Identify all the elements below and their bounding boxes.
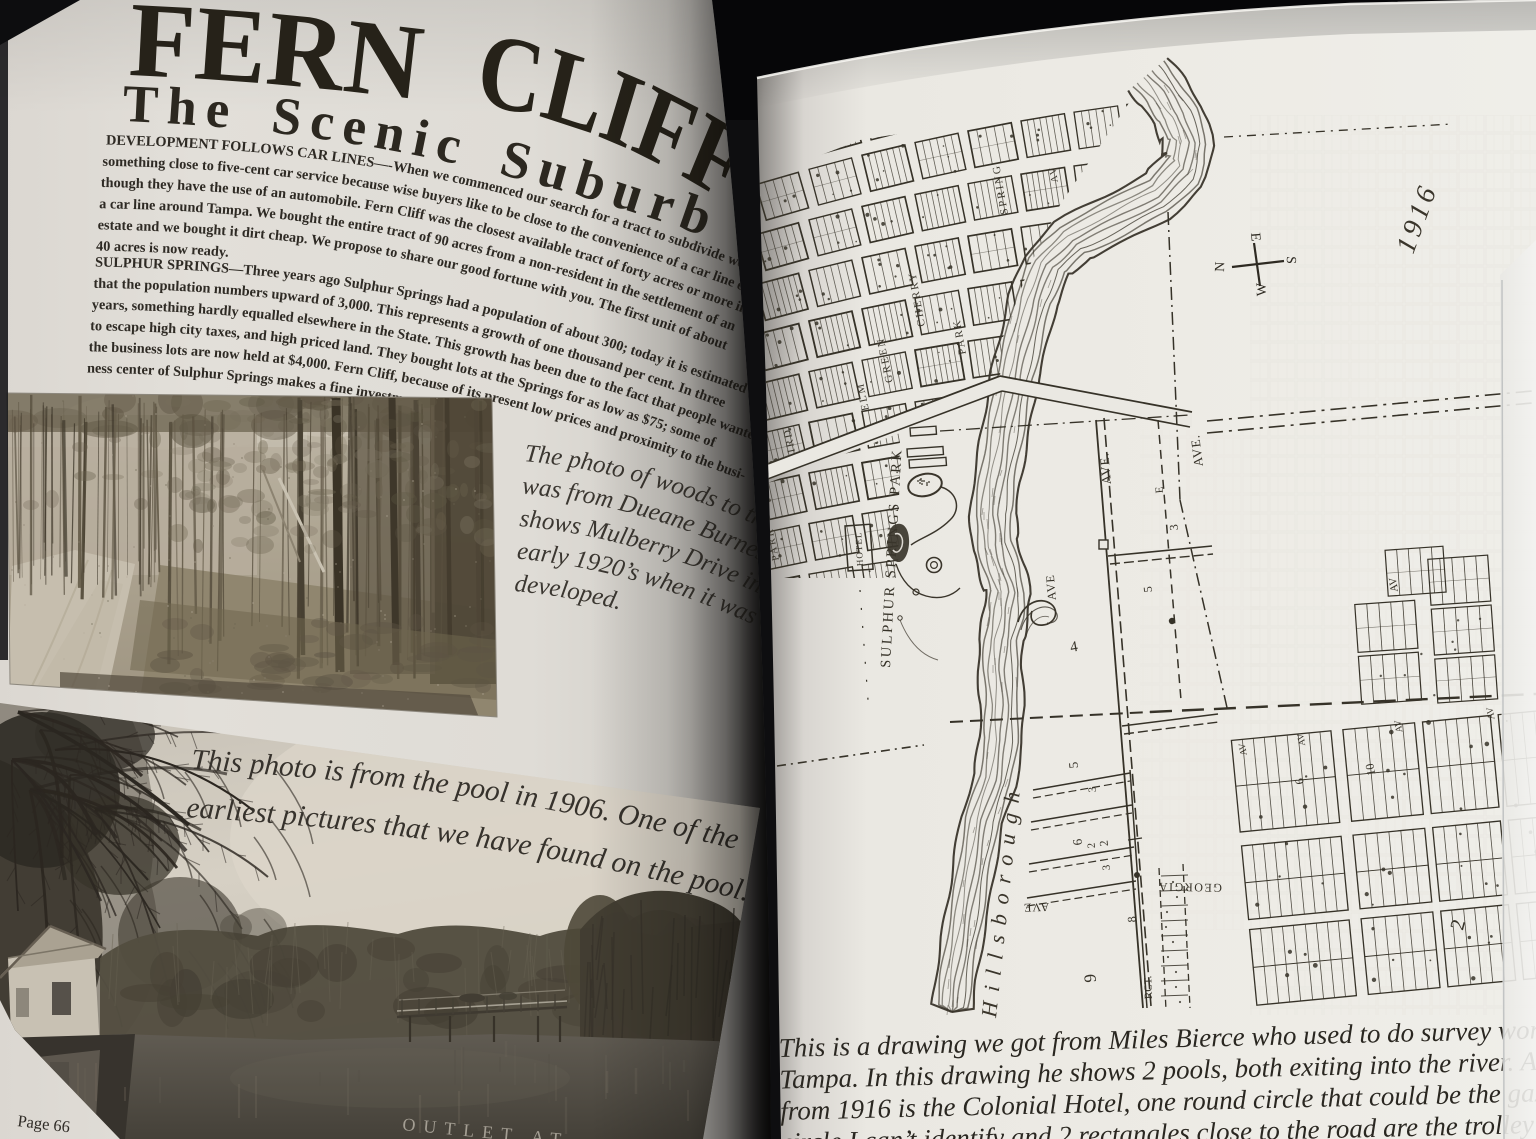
svg-text:10: 10 — [1362, 762, 1378, 776]
svg-text:W: W — [1255, 282, 1270, 297]
svg-text:8: 8 — [1125, 916, 1139, 923]
svg-text:E: E — [1153, 486, 1166, 494]
svg-text:E: E — [1247, 232, 1263, 242]
svg-text:AVE.: AVE. — [1096, 452, 1114, 485]
svg-text:AVE: AVE — [1023, 900, 1050, 915]
svg-text:2: 2 — [1097, 840, 1111, 847]
svg-text:N: N — [1213, 261, 1228, 272]
svg-text:2: 2 — [1086, 842, 1098, 849]
svg-text:3: 3 — [1167, 524, 1181, 531]
svg-text:AV: AV — [1387, 577, 1401, 593]
svg-text:AV: AV — [1486, 706, 1498, 720]
svg-text:AV: AV — [1296, 732, 1308, 746]
svg-text:GEORGIA: GEORGIA — [1157, 880, 1222, 895]
svg-text:HOTEL: HOTEL — [853, 531, 865, 566]
svg-text:5: 5 — [1141, 586, 1155, 593]
svg-text:AVE: AVE — [1043, 574, 1059, 601]
svg-text:9: 9 — [1080, 973, 1100, 983]
svg-text:S: S — [1283, 256, 1298, 264]
svg-text:5: 5 — [1065, 761, 1081, 769]
svg-text:AV: AV — [1393, 719, 1405, 733]
svg-text:RCT.: RCT. — [1142, 975, 1155, 999]
svg-text:AV: AV — [1238, 742, 1250, 756]
